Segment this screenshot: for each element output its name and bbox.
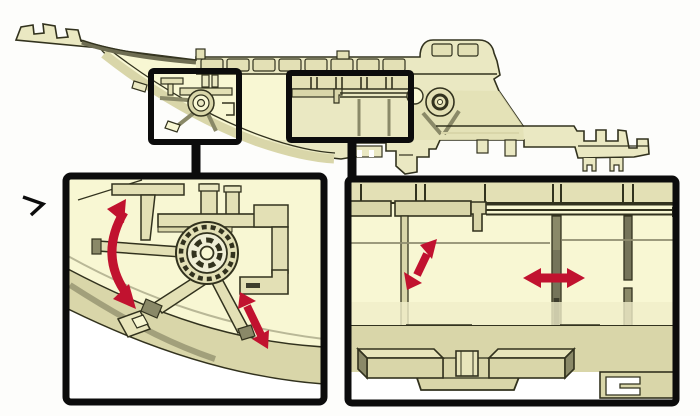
foot-pad-top bbox=[358, 349, 443, 358]
rail-segment bbox=[383, 59, 405, 71]
clip-under-beam bbox=[505, 140, 516, 156]
t-rib-stem bbox=[168, 84, 173, 95]
e-clip-notch bbox=[357, 150, 362, 157]
right-detail-view bbox=[348, 179, 676, 403]
t-rib-flange bbox=[112, 184, 184, 195]
rail-stud bbox=[337, 51, 349, 59]
left-detail-view bbox=[66, 176, 324, 402]
ledge-bar bbox=[348, 201, 391, 216]
e-clip-notch bbox=[369, 150, 374, 157]
post-cap bbox=[224, 186, 241, 192]
post-cap bbox=[199, 184, 219, 191]
spoke bbox=[160, 98, 188, 100]
foot-center-post bbox=[456, 351, 478, 376]
boss-center bbox=[438, 100, 443, 105]
foot-pad-front bbox=[367, 358, 443, 378]
post bbox=[212, 75, 218, 87]
hump-segment bbox=[432, 44, 452, 56]
clip-under-beam bbox=[477, 140, 488, 153]
spoke-left-cap bbox=[92, 239, 101, 254]
rail-segment bbox=[331, 59, 353, 71]
hub-bore bbox=[198, 100, 205, 107]
top-band bbox=[348, 182, 676, 203]
pivot-hub bbox=[176, 222, 238, 284]
foot-pad-front bbox=[489, 358, 565, 378]
rail-post bbox=[196, 49, 205, 59]
t-rib-flange bbox=[161, 78, 183, 84]
ledge-bar bbox=[395, 201, 471, 216]
bracket-step bbox=[254, 205, 288, 227]
field-shading bbox=[348, 302, 676, 326]
rail-segment bbox=[253, 59, 275, 71]
bracket-wall bbox=[272, 227, 288, 273]
hump-segment bbox=[458, 44, 478, 56]
post bbox=[202, 75, 209, 87]
hub-bore bbox=[201, 247, 214, 260]
rail-segment bbox=[357, 59, 379, 71]
foot-pad-top bbox=[489, 349, 574, 358]
rail-segment bbox=[279, 59, 301, 71]
upper-band bbox=[290, 76, 412, 89]
figure-canvas bbox=[0, 0, 700, 416]
rail-segment bbox=[305, 59, 327, 71]
rib-right-upper bbox=[624, 216, 632, 280]
latch-slot bbox=[246, 283, 260, 288]
ledge-bar bbox=[292, 89, 334, 97]
